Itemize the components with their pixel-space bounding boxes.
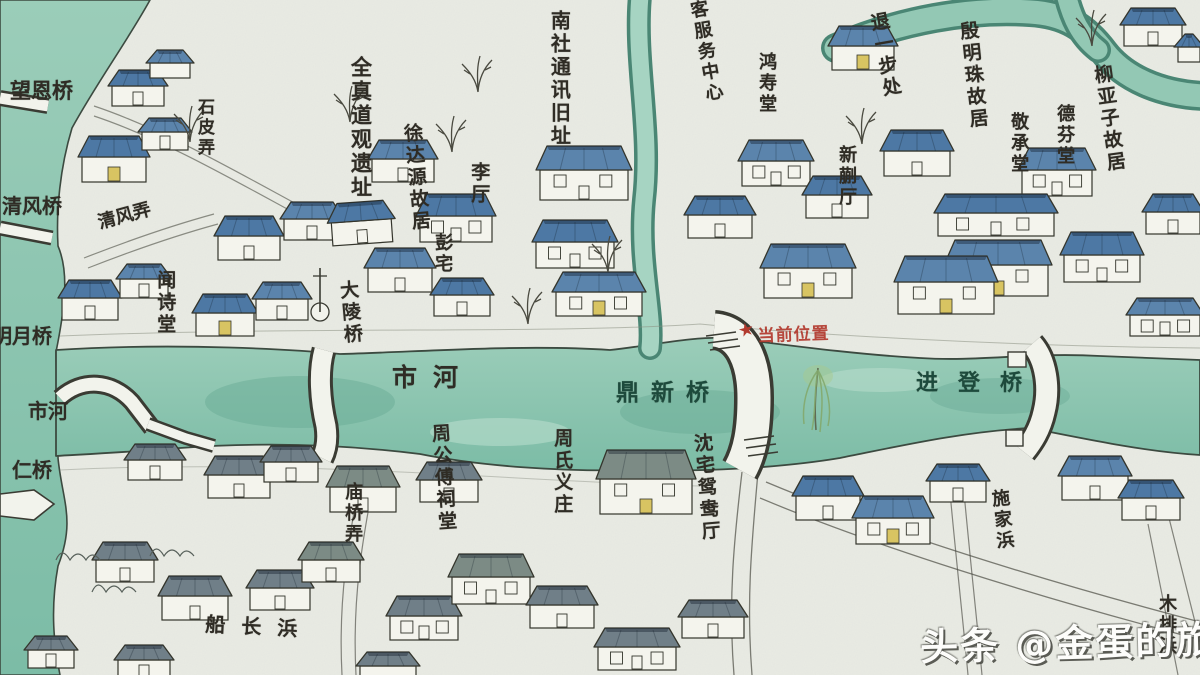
building xyxy=(880,130,954,176)
building xyxy=(24,636,78,668)
hand-drawn-map: 望恩桥石皮弄清风桥清风弄闻诗堂明月桥市河仁桥全真道观遗址徐达源故居李厅彭宅大陵桥… xyxy=(0,0,1200,675)
building xyxy=(1120,8,1186,46)
building xyxy=(58,280,122,320)
building xyxy=(596,450,696,514)
building xyxy=(1018,148,1096,196)
building xyxy=(852,496,934,544)
building xyxy=(326,200,397,247)
building xyxy=(934,194,1058,236)
building xyxy=(252,282,312,320)
building xyxy=(760,244,856,298)
building xyxy=(828,26,898,70)
building xyxy=(158,576,232,620)
building xyxy=(368,140,438,182)
building xyxy=(1118,480,1184,520)
building xyxy=(114,645,174,675)
building xyxy=(1142,194,1200,234)
building xyxy=(448,554,534,604)
building xyxy=(146,50,194,78)
building xyxy=(678,600,748,638)
map-artwork xyxy=(0,0,1200,675)
building xyxy=(260,446,322,482)
building xyxy=(536,146,632,200)
building xyxy=(116,264,172,298)
building xyxy=(1060,232,1144,282)
building xyxy=(684,196,756,238)
building xyxy=(92,542,158,582)
building xyxy=(356,652,420,675)
building xyxy=(124,444,186,480)
building xyxy=(594,628,680,670)
building xyxy=(926,464,990,502)
building xyxy=(526,586,598,628)
building xyxy=(192,294,258,336)
building xyxy=(430,278,494,316)
building xyxy=(78,136,150,182)
watermark: 头条 @金蛋的旅程 xyxy=(919,608,1200,672)
building xyxy=(326,466,400,512)
building xyxy=(298,542,364,582)
building xyxy=(214,216,284,260)
building xyxy=(138,118,192,150)
building xyxy=(552,272,646,316)
building xyxy=(1126,298,1200,336)
building xyxy=(364,248,436,292)
building xyxy=(802,176,872,218)
building xyxy=(894,256,998,314)
building xyxy=(386,596,462,640)
building xyxy=(416,462,482,502)
building xyxy=(738,140,814,186)
building xyxy=(792,476,864,520)
building xyxy=(416,194,496,242)
